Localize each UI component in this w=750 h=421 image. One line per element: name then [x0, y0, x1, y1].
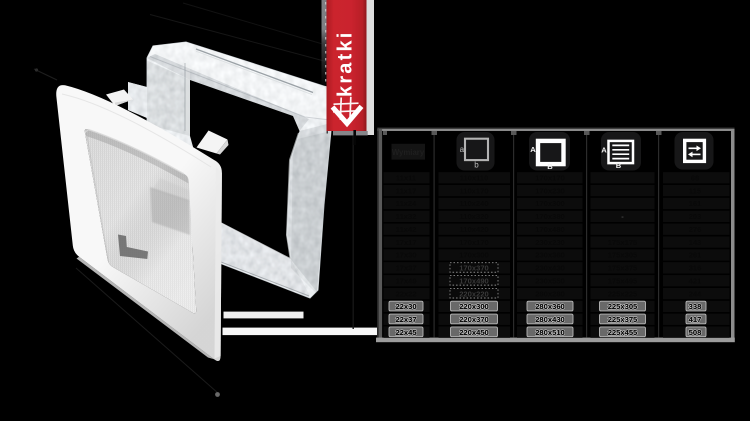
- svg-text:161: 161: [689, 199, 702, 208]
- svg-text:22x37: 22x37: [395, 315, 416, 324]
- svg-text:175x375: 175x375: [608, 264, 638, 273]
- svg-text:17x30: 17x30: [395, 251, 416, 260]
- svg-text:417: 417: [689, 315, 702, 324]
- svg-text:170x370: 170x370: [459, 264, 489, 273]
- svg-text:22x22: 22x22: [395, 289, 416, 298]
- svg-text:230x230: 230x230: [535, 238, 565, 247]
- svg-text:230x550: 230x550: [535, 276, 565, 285]
- svg-text:225x455: 225x455: [608, 328, 638, 337]
- svg-text:A: A: [601, 145, 607, 154]
- svg-text:225x375: 225x375: [608, 315, 638, 324]
- svg-text:170x490: 170x490: [459, 276, 489, 285]
- svg-text:b: b: [474, 161, 479, 170]
- svg-text:11x24: 11x24: [396, 199, 417, 208]
- svg-text:kratki: kratki: [335, 30, 357, 97]
- svg-text:170x170: 170x170: [535, 174, 565, 183]
- svg-text:220x220: 220x220: [459, 289, 489, 298]
- svg-text:11x42: 11x42: [396, 225, 417, 234]
- svg-text:175x175: 175x175: [608, 238, 638, 247]
- svg-text:115: 115: [689, 186, 702, 195]
- svg-text:508: 508: [689, 328, 702, 337]
- svg-text:110x240: 110x240: [459, 199, 488, 208]
- svg-text:B: B: [547, 162, 553, 171]
- svg-text:175x495: 175x495: [608, 276, 638, 285]
- svg-text:143: 143: [689, 238, 702, 247]
- svg-text:170x230: 170x230: [535, 186, 565, 195]
- svg-text:11x32: 11x32: [396, 212, 417, 221]
- svg-text:244: 244: [689, 289, 702, 298]
- svg-text:220x300: 220x300: [459, 302, 489, 311]
- svg-text:a: a: [460, 145, 465, 154]
- svg-text:B: B: [616, 161, 622, 170]
- svg-text:338: 338: [689, 302, 702, 311]
- svg-text:175x305: 175x305: [608, 251, 638, 260]
- svg-text:220x450: 220x450: [459, 328, 489, 337]
- svg-text:280x430: 280x430: [535, 315, 565, 324]
- svg-text:170x380: 170x380: [535, 212, 565, 221]
- svg-text:170x300: 170x300: [459, 251, 489, 260]
- svg-text:170x480: 170x480: [535, 225, 565, 234]
- svg-text:261: 261: [689, 251, 702, 260]
- svg-text:110x420: 110x420: [459, 225, 488, 234]
- svg-text:110x170: 110x170: [459, 186, 488, 195]
- svg-text:276: 276: [689, 225, 702, 234]
- svg-text:225x305: 225x305: [608, 302, 638, 311]
- svg-text:421: 421: [689, 276, 702, 285]
- svg-text:280x280: 280x280: [535, 289, 565, 298]
- svg-text:316: 316: [689, 264, 702, 273]
- svg-text:230x430: 230x430: [535, 264, 565, 273]
- svg-text:11x11: 11x11: [396, 174, 417, 183]
- svg-text:Wymiary: Wymiary: [392, 148, 425, 157]
- svg-text:230x360: 230x360: [535, 251, 565, 260]
- svg-text:22x45: 22x45: [395, 328, 417, 337]
- svg-text:203: 203: [689, 212, 702, 221]
- svg-text:17x17: 17x17: [395, 238, 416, 247]
- svg-text:110x320: 110x320: [459, 212, 488, 221]
- svg-text:170x170: 170x170: [459, 238, 489, 247]
- svg-text:17x37: 17x37: [395, 264, 416, 273]
- svg-text:170x300: 170x300: [535, 199, 565, 208]
- svg-text:17x49: 17x49: [395, 276, 416, 285]
- svg-text:220x370: 220x370: [459, 315, 489, 324]
- svg-text:110x110: 110x110: [460, 174, 489, 183]
- svg-text:22x30: 22x30: [395, 302, 416, 311]
- svg-text:A: A: [530, 145, 536, 154]
- svg-text:280x510: 280x510: [535, 328, 565, 337]
- svg-text:68: 68: [691, 174, 699, 183]
- svg-text:280x360: 280x360: [535, 302, 565, 311]
- svg-text:225x225: 225x225: [608, 289, 638, 298]
- svg-text:11x17: 11x17: [396, 186, 417, 195]
